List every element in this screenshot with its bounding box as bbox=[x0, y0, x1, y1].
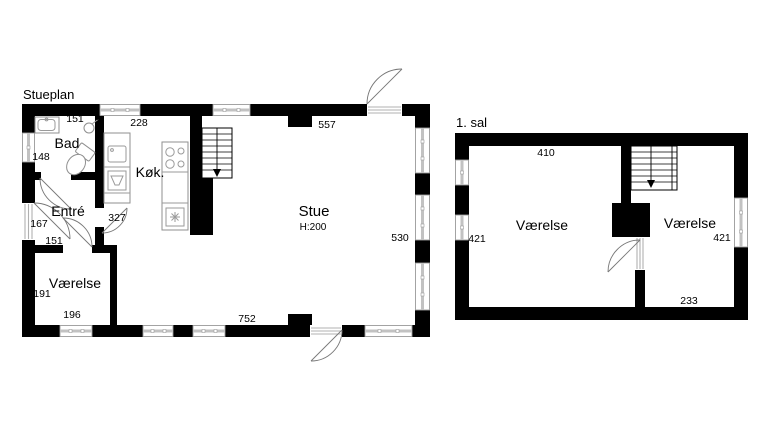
dim-entre-left: 167 bbox=[30, 218, 48, 230]
ground-floor-plan: Stueplan bbox=[22, 69, 430, 361]
window bbox=[735, 198, 748, 247]
door-vaerelse bbox=[63, 218, 92, 247]
window bbox=[193, 326, 225, 337]
floorplan-image: Stueplan bbox=[0, 0, 768, 422]
room-label-vaerelse-left: Værelse bbox=[516, 217, 568, 233]
chimney-stub-top bbox=[288, 116, 312, 127]
staircase bbox=[631, 146, 677, 190]
dim-vaerelse-right: 421 bbox=[713, 232, 731, 244]
dim-first-floor-top: 410 bbox=[537, 147, 555, 159]
room-label-stue: Stue bbox=[299, 203, 330, 220]
dim-stue-top: 557 bbox=[318, 119, 336, 131]
dim-kok-top: 228 bbox=[130, 117, 148, 129]
chimney-block bbox=[612, 203, 650, 237]
room-label-kok: Køk. bbox=[136, 164, 165, 180]
staircase bbox=[202, 128, 232, 178]
door-top bbox=[367, 69, 402, 116]
window bbox=[213, 105, 250, 116]
dim-stue-right: 530 bbox=[391, 232, 409, 244]
chimney-stub-bottom bbox=[288, 314, 312, 325]
bathroom-sink-icon bbox=[35, 117, 59, 133]
first-floor-plan: 1. sal bbox=[455, 115, 748, 320]
window bbox=[143, 326, 173, 337]
floorplan-drawing: Stueplan bbox=[0, 0, 768, 422]
dim-vaerelse-left: 191 bbox=[33, 288, 51, 300]
dim-vaerelse-right-bottom: 233 bbox=[680, 295, 698, 307]
first-floor-windows bbox=[456, 160, 748, 247]
window bbox=[365, 326, 412, 337]
door-bottom bbox=[310, 325, 342, 361]
kitchen-counter-right bbox=[162, 142, 188, 230]
dim-kok-bottom: 327 bbox=[108, 212, 126, 224]
kitchen-counter-left bbox=[104, 133, 130, 203]
room-label-vaerelse-right: Værelse bbox=[664, 215, 716, 231]
ground-floor-title: Stueplan bbox=[23, 87, 74, 102]
chimney-block bbox=[190, 178, 213, 235]
first-floor-title: 1. sal bbox=[456, 115, 487, 130]
window bbox=[416, 128, 430, 173]
room-label-bad: Bad bbox=[55, 135, 80, 151]
dim-entre-bottom: 151 bbox=[45, 235, 63, 247]
window bbox=[60, 326, 92, 337]
dim-vaerelse-bottom: 196 bbox=[63, 309, 81, 321]
dim-stue-bottom: 752 bbox=[238, 313, 256, 325]
window bbox=[416, 195, 430, 240]
dim-bad-left: 148 bbox=[32, 151, 50, 163]
window bbox=[100, 105, 140, 116]
room-label-entre: Entré bbox=[51, 203, 85, 219]
door-between-rooms bbox=[608, 237, 645, 272]
dim-vaerelse-left: 421 bbox=[468, 233, 486, 245]
stue-ceiling-height: H:200 bbox=[300, 222, 327, 233]
window bbox=[416, 263, 430, 310]
dim-bad-top: 151 bbox=[66, 113, 84, 125]
window bbox=[456, 160, 469, 185]
room-label-vaerelse: Værelse bbox=[49, 275, 101, 291]
window bbox=[456, 215, 469, 240]
